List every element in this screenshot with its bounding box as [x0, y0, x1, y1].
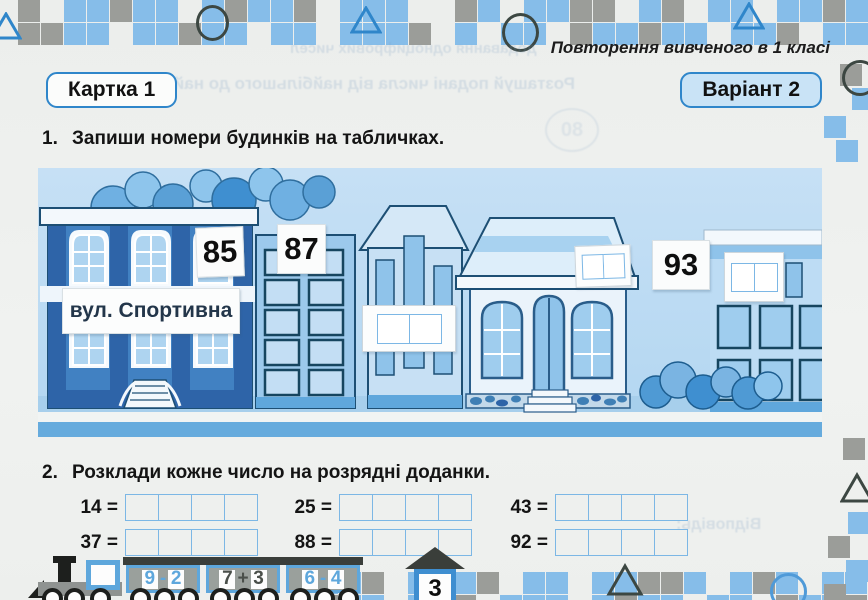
- page-number: 3: [414, 569, 456, 600]
- task2-grid: 14 = 25 = 43 = 37 = 88 = 92 =: [62, 494, 708, 556]
- mosaic-square: [824, 584, 846, 600]
- equation-label: 25 =: [276, 497, 332, 519]
- mosaic-square: [110, 0, 132, 22]
- task2-heading: 2.Розклади кожне число на розрядні додан…: [42, 462, 490, 484]
- mosaic-square: [846, 560, 868, 582]
- answer-cell[interactable]: [622, 494, 655, 521]
- triangle-icon: [606, 563, 644, 597]
- car-digit: 9: [142, 570, 158, 589]
- mosaic-square: [64, 23, 86, 45]
- empty-house-plate[interactable]: [574, 244, 631, 288]
- mosaic-square: [639, 0, 661, 22]
- car-roof: [283, 557, 363, 565]
- worksheet-page: Розташуй подані числа від найбільшого до…: [0, 0, 868, 600]
- mosaic-square: [593, 0, 615, 22]
- answer-cell[interactable]: [622, 529, 655, 556]
- answer-cell[interactable]: [339, 529, 373, 556]
- cab-window: [91, 565, 115, 585]
- answer-cell[interactable]: [373, 494, 406, 521]
- plate-digit-cell[interactable]: [603, 253, 625, 279]
- mosaic-square: [823, 0, 845, 22]
- answer-cell[interactable]: [225, 529, 258, 556]
- mosaic-square: [64, 0, 86, 22]
- mosaic-square: [800, 0, 822, 22]
- mosaic-square: [845, 595, 867, 600]
- task1-heading: 1.Запиши номери будинків на табличках.: [42, 128, 444, 150]
- car-roof: [123, 557, 203, 565]
- mosaic-square: [836, 140, 858, 162]
- card-badge: Картка 1: [46, 72, 177, 108]
- page-house-roof: [405, 547, 465, 569]
- mosaic-square: [386, 0, 408, 22]
- chapter-note: Повторення вивченого в 1 класі: [551, 38, 830, 58]
- answer-cell[interactable]: [555, 529, 589, 556]
- mosaic-square: [547, 0, 569, 22]
- mosaic-square: [523, 595, 545, 600]
- mosaic-square: [455, 0, 477, 22]
- task1-text: Запиши номери будинків на табличках.: [72, 128, 444, 149]
- task2-text: Розклади кожне число на розрядні доданки…: [72, 462, 490, 483]
- mosaic-square: [87, 23, 109, 45]
- mosaic-square: [661, 572, 683, 594]
- curb: [38, 412, 822, 422]
- car-digit: 2: [168, 570, 184, 589]
- page-number-marker: 3: [405, 547, 465, 600]
- equation-item: 37 =: [62, 529, 276, 556]
- equation-label: 43 =: [492, 497, 548, 519]
- answer-cell[interactable]: [225, 494, 258, 521]
- locomotive-cab: [86, 560, 120, 590]
- answer-cell[interactable]: [373, 529, 406, 556]
- mosaic-square: [824, 116, 846, 138]
- answer-cell[interactable]: [406, 494, 439, 521]
- mosaic-square: [730, 572, 752, 594]
- answer-boxes: [125, 529, 258, 556]
- mosaic-square: [500, 595, 522, 600]
- answer-cell[interactable]: [655, 494, 688, 521]
- car-operator: +: [237, 568, 248, 590]
- illustration-panel: вул. Спортивна 85 87 93: [38, 168, 822, 437]
- answer-boxes: [555, 494, 688, 521]
- mosaic-square: [478, 0, 500, 22]
- car-digit: 3: [251, 570, 267, 589]
- mosaic-square: [843, 438, 865, 460]
- house-steps: [524, 390, 576, 412]
- equation-item: 25 =: [276, 494, 492, 521]
- car-roof: [203, 557, 283, 565]
- bleedthrough-text: додавання одноцифрових чисел: [290, 40, 536, 57]
- plate-digit-cell[interactable]: [377, 314, 410, 344]
- equation-label: 92 =: [492, 532, 548, 554]
- equation-label: 37 =: [62, 532, 118, 554]
- answer-cell[interactable]: [159, 494, 192, 521]
- answer-cell[interactable]: [655, 529, 688, 556]
- empty-house-plate[interactable]: [724, 252, 784, 302]
- mosaic-square: [684, 572, 706, 594]
- mosaic-square: [708, 0, 730, 22]
- plate-digit-cell[interactable]: [731, 263, 755, 292]
- car-digit: 4: [328, 570, 344, 589]
- plate-digit-cell[interactable]: [755, 263, 778, 292]
- mosaic-square: [362, 572, 384, 594]
- mosaic-square: [133, 23, 155, 45]
- mosaic-square: [846, 23, 868, 45]
- mosaic-square: [248, 0, 270, 22]
- mosaic-square: [294, 0, 316, 22]
- mosaic-square: [777, 0, 799, 22]
- triangle-icon: [350, 6, 382, 34]
- car-operator: -: [160, 568, 166, 590]
- mosaic-square: [41, 23, 63, 45]
- circle-icon: [770, 573, 807, 600]
- car-digit: 6: [302, 570, 318, 589]
- triangle-icon: [0, 12, 22, 40]
- triangle-icon: [840, 472, 868, 504]
- mosaic-square: [546, 595, 568, 600]
- equation-label: 14 =: [62, 497, 118, 519]
- equation-item: 92 =: [492, 529, 708, 556]
- mosaic-square: [661, 595, 683, 600]
- answer-cell[interactable]: [339, 494, 373, 521]
- plate-digit-cell[interactable]: [581, 253, 604, 279]
- answer-cell[interactable]: [125, 529, 159, 556]
- answer-cell[interactable]: [125, 494, 159, 521]
- variant-badge: Варіант 2: [680, 72, 822, 108]
- circle-icon: [196, 5, 229, 41]
- plate-digit-cell[interactable]: [410, 314, 442, 344]
- mosaic-square: [570, 0, 592, 22]
- mosaic-square: [156, 23, 178, 45]
- equation-item: 14 =: [62, 494, 276, 521]
- triangle-icon: [733, 2, 765, 30]
- car-operator: -: [320, 568, 326, 590]
- house-plate-85[interactable]: 85: [195, 226, 245, 278]
- answer-cell[interactable]: [589, 529, 622, 556]
- answer-cell[interactable]: [439, 494, 472, 521]
- mosaic-square: [477, 572, 499, 594]
- answer-cell[interactable]: [192, 494, 225, 521]
- equation-item: 43 =: [492, 494, 708, 521]
- mosaic-square: [523, 572, 545, 594]
- task2-number: 2.: [42, 462, 72, 484]
- house-plate-87[interactable]: 87: [277, 224, 326, 274]
- answer-cell[interactable]: [159, 529, 192, 556]
- street-sign: вул. Спортивна: [62, 288, 240, 334]
- answer-boxes: [125, 494, 258, 521]
- mosaic-square: [848, 512, 868, 534]
- mosaic-square: [362, 595, 384, 600]
- mosaic-square: [156, 0, 178, 22]
- mosaic-square: [271, 0, 293, 22]
- mosaic-square: [707, 595, 729, 600]
- circle-icon: [842, 60, 868, 96]
- answer-cell[interactable]: [589, 494, 622, 521]
- mosaic-square: [662, 0, 684, 22]
- answer-boxes: [555, 529, 688, 556]
- mosaic-square: [87, 0, 109, 22]
- answer-cell[interactable]: [555, 494, 589, 521]
- equation-label: 88 =: [276, 532, 332, 554]
- locomotive-chimney-cap: [53, 556, 76, 563]
- train-illustration: 9-2 7+3 6-4: [34, 554, 334, 600]
- mosaic-square: [133, 0, 155, 22]
- task1-number: 1.: [42, 128, 72, 150]
- mosaic-square: [828, 536, 850, 558]
- empty-house-plate[interactable]: [362, 305, 456, 352]
- car-digit: 7: [219, 570, 235, 589]
- answer-boxes: [339, 494, 472, 521]
- bleedthrough-number: 80: [545, 108, 599, 152]
- mosaic-square: [846, 0, 868, 22]
- house-plate-93[interactable]: 93: [652, 240, 710, 290]
- answer-cell[interactable]: [192, 529, 225, 556]
- road: [38, 422, 822, 437]
- mosaic-square: [730, 595, 752, 600]
- mosaic-square: [546, 572, 568, 594]
